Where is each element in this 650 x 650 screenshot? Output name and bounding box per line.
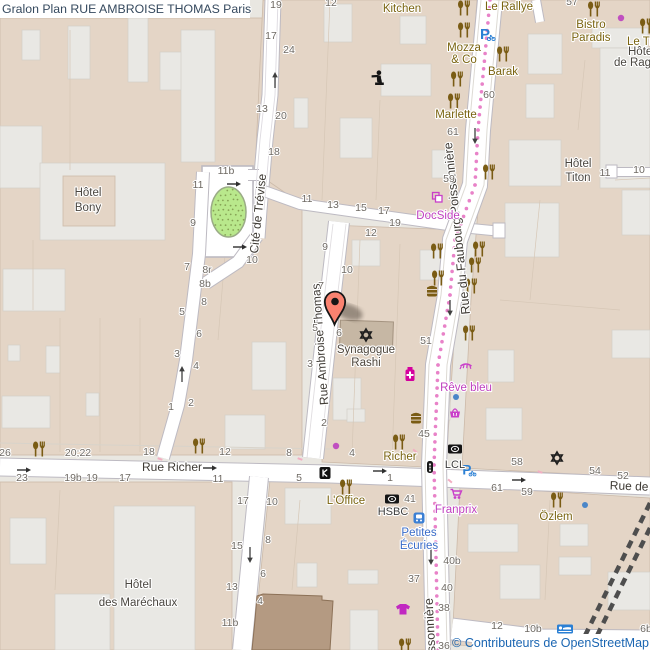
- svg-text:11: 11: [600, 167, 611, 179]
- svg-text:Kitchen: Kitchen: [383, 3, 421, 15]
- svg-text:Barak: Barak: [488, 66, 518, 78]
- svg-text:23: 23: [16, 472, 28, 484]
- svg-text:9: 9: [322, 241, 328, 253]
- svg-text:Hôtel: Hôtel: [125, 579, 152, 591]
- svg-text:57: 57: [566, 0, 578, 8]
- svg-text:8: 8: [201, 296, 207, 308]
- svg-text:Titon: Titon: [565, 172, 590, 184]
- svg-text:18: 18: [143, 446, 155, 458]
- svg-text:Hôtel: Hôtel: [75, 187, 102, 199]
- svg-text:10: 10: [266, 496, 278, 508]
- svg-text:26: 26: [0, 447, 11, 459]
- svg-text:17: 17: [378, 205, 390, 217]
- svg-text:60: 60: [483, 89, 495, 101]
- svg-text:17: 17: [237, 495, 249, 507]
- svg-text:15: 15: [355, 202, 367, 214]
- svg-text:10: 10: [246, 254, 258, 266]
- svg-text:8r: 8r: [202, 264, 212, 276]
- svg-text:10b: 10b: [524, 623, 542, 635]
- svg-text:© Contributeurs de OpenStreetM: © Contributeurs de OpenStreetMap: [452, 636, 649, 650]
- svg-text:6: 6: [196, 328, 202, 340]
- svg-text:& Co: & Co: [451, 54, 477, 66]
- svg-text:36: 36: [438, 640, 450, 650]
- svg-text:8b: 8b: [199, 278, 211, 290]
- svg-text:Richer: Richer: [383, 451, 416, 463]
- svg-text:Rêve bleu: Rêve bleu: [440, 382, 492, 394]
- svg-text:20: 20: [275, 110, 287, 122]
- svg-text:10: 10: [341, 264, 353, 276]
- svg-text:Mozza: Mozza: [447, 42, 481, 54]
- svg-text:40: 40: [441, 582, 453, 594]
- svg-text:Paradis: Paradis: [572, 32, 611, 44]
- svg-text:Marlette: Marlette: [435, 109, 477, 121]
- svg-text:13: 13: [327, 199, 339, 211]
- svg-text:Rashi: Rashi: [351, 357, 380, 369]
- svg-text:13: 13: [226, 581, 238, 593]
- svg-text:9: 9: [190, 217, 196, 229]
- svg-text:59: 59: [521, 486, 533, 498]
- svg-text:12: 12: [491, 620, 503, 632]
- svg-text:5: 5: [296, 472, 302, 484]
- svg-text:19: 19: [389, 217, 401, 229]
- svg-text:3: 3: [174, 348, 180, 360]
- svg-text:8: 8: [286, 447, 292, 459]
- svg-text:3: 3: [307, 358, 313, 370]
- svg-text:41: 41: [404, 493, 416, 505]
- svg-text:11: 11: [213, 473, 224, 485]
- svg-text:17: 17: [119, 472, 131, 484]
- svg-text:11b: 11b: [222, 617, 239, 629]
- svg-text:8: 8: [265, 534, 271, 546]
- svg-text:LCL: LCL: [445, 459, 465, 471]
- svg-text:HSBC: HSBC: [378, 506, 409, 518]
- svg-text:52: 52: [617, 470, 629, 482]
- svg-text:11: 11: [193, 179, 204, 191]
- svg-text:40b: 40b: [443, 555, 461, 567]
- svg-text:Hôtel: Hôtel: [565, 158, 592, 170]
- svg-text:11b: 11b: [218, 165, 235, 177]
- svg-text:12: 12: [325, 0, 337, 9]
- svg-text:Bistro: Bistro: [576, 19, 605, 31]
- svg-text:Écuries: Écuries: [400, 539, 439, 552]
- svg-text:6b: 6b: [640, 623, 650, 635]
- svg-text:19: 19: [270, 0, 282, 11]
- svg-text:Petites: Petites: [401, 527, 436, 539]
- svg-text:58: 58: [511, 456, 523, 468]
- svg-text:37: 37: [408, 573, 420, 585]
- svg-text:DocSide: DocSide: [416, 210, 459, 222]
- svg-text:13: 13: [256, 103, 268, 115]
- svg-text:Le Rallye: Le Rallye: [485, 1, 533, 13]
- svg-text:4: 4: [193, 360, 199, 372]
- svg-text:12: 12: [365, 227, 377, 239]
- svg-text:6: 6: [260, 568, 266, 580]
- svg-text:2: 2: [188, 397, 194, 409]
- svg-text:1: 1: [168, 401, 174, 413]
- svg-text:des Maréchaux: des Maréchaux: [99, 597, 178, 609]
- svg-text:12: 12: [219, 446, 231, 458]
- svg-text:4: 4: [349, 447, 355, 459]
- svg-text:54: 54: [589, 465, 601, 477]
- svg-text:19b: 19b: [64, 472, 82, 484]
- svg-text:10: 10: [633, 164, 645, 176]
- svg-text:59: 59: [443, 173, 455, 185]
- svg-text:24: 24: [283, 44, 295, 56]
- svg-text:Özlem: Özlem: [539, 511, 572, 523]
- svg-text:1: 1: [387, 472, 393, 484]
- svg-text:20;22: 20;22: [65, 447, 91, 459]
- svg-text:61: 61: [447, 126, 459, 138]
- svg-text:Rue de: Rue de: [610, 478, 649, 493]
- svg-text:61: 61: [491, 482, 503, 494]
- svg-text:15: 15: [231, 540, 243, 552]
- svg-text:5: 5: [179, 306, 185, 318]
- svg-text:4: 4: [257, 595, 263, 607]
- svg-text:2: 2: [321, 417, 327, 429]
- svg-text:Franprix: Franprix: [435, 504, 477, 516]
- svg-text:38: 38: [438, 602, 450, 614]
- svg-text:7: 7: [318, 280, 324, 292]
- svg-text:5: 5: [312, 322, 318, 334]
- svg-text:Synagogue: Synagogue: [337, 344, 395, 356]
- svg-text:6: 6: [336, 327, 342, 339]
- svg-text:Gralon Plan RUE AMBROISE THOMA: Gralon Plan RUE AMBROISE THOMAS Paris: [2, 2, 251, 16]
- svg-text:de Raguse: de Raguse: [614, 57, 650, 69]
- svg-text:45: 45: [418, 428, 430, 440]
- svg-text:Rue Richer: Rue Richer: [142, 460, 202, 474]
- svg-text:17: 17: [265, 30, 277, 42]
- svg-text:19: 19: [86, 472, 98, 484]
- svg-text:ssonnière: ssonnière: [422, 598, 439, 650]
- svg-text:Bony: Bony: [75, 202, 101, 214]
- svg-text:7: 7: [184, 261, 190, 273]
- svg-text:11: 11: [302, 193, 313, 205]
- svg-text:18: 18: [268, 146, 280, 158]
- svg-text:L'Office: L'Office: [327, 495, 365, 507]
- svg-text:51: 51: [420, 335, 432, 347]
